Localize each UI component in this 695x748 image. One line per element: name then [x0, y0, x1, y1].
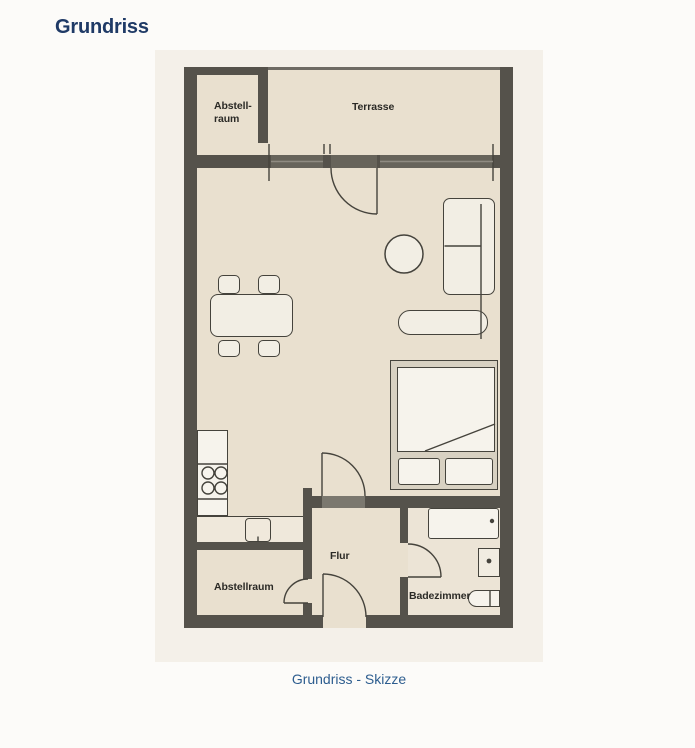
wall-bottom-right [366, 615, 513, 628]
page-title: Grundriss [55, 16, 149, 39]
window-terrace-right [380, 155, 493, 168]
wall-storage-right [258, 75, 268, 143]
coffee-table [398, 310, 488, 335]
room-label-terrace: Terrasse [352, 101, 394, 114]
room-label-storage-top: Abstell- raum [214, 100, 252, 126]
wall-bottom-left [184, 615, 323, 628]
room-label-storage-bottom: Abstellraum [214, 581, 274, 594]
wall-bath-left-upper [400, 507, 408, 543]
bed-pillow [445, 458, 493, 485]
hall-door-threshold [322, 496, 365, 508]
room-label-hallway: Flur [330, 550, 349, 563]
kitchen-sink [245, 518, 271, 542]
bed-mattress [397, 367, 495, 452]
bathtub [428, 508, 499, 539]
terrace-door-opening [331, 155, 377, 168]
wall-living-bath [365, 496, 500, 508]
dining-chair [258, 340, 280, 357]
storage-top-line1: Abstell- [214, 100, 252, 112]
room-label-bathroom: Badezimmer [409, 590, 470, 603]
dining-table [210, 294, 293, 337]
terrace-railing [268, 67, 500, 70]
bathroom-sink [478, 548, 500, 577]
wall-kitchen-storage [184, 542, 312, 550]
wall-hall-left-upper [303, 488, 312, 579]
kitchen-counter [197, 430, 228, 516]
bed-pillow [398, 458, 440, 485]
dining-chair [218, 340, 240, 357]
floorplan-image: Abstell- raum Terrasse Flur Abstellraum … [155, 50, 543, 662]
sofa [443, 198, 495, 295]
storage-top-line2: raum [214, 113, 239, 125]
page: Grundriss [0, 0, 695, 748]
wall-storage-top [184, 67, 268, 75]
image-caption: Grundriss - Skizze [155, 671, 543, 687]
wall-right-exterior [500, 67, 513, 628]
toilet [468, 590, 500, 607]
dining-chair [258, 275, 280, 294]
dining-chair [218, 275, 240, 294]
window-terrace-left [271, 155, 323, 168]
